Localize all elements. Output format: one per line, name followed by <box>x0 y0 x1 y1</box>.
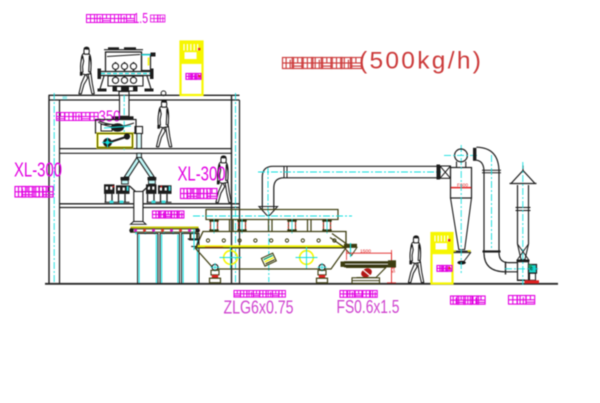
svg-text:ZLG6x0.75: ZLG6x0.75 <box>224 298 294 318</box>
svg-text:350: 350 <box>99 109 121 126</box>
svg-text:(500kg/h): (500kg/h) <box>359 48 483 75</box>
svg-text:XL-300: XL-300 <box>14 160 62 182</box>
svg-text:XL-300: XL-300 <box>178 164 226 186</box>
svg-text:F600: F600 <box>457 182 468 188</box>
svg-text:1500: 1500 <box>360 249 371 255</box>
svg-text:1.5: 1.5 <box>134 11 149 27</box>
svg-text:FS0.6x1.5: FS0.6x1.5 <box>337 297 400 317</box>
